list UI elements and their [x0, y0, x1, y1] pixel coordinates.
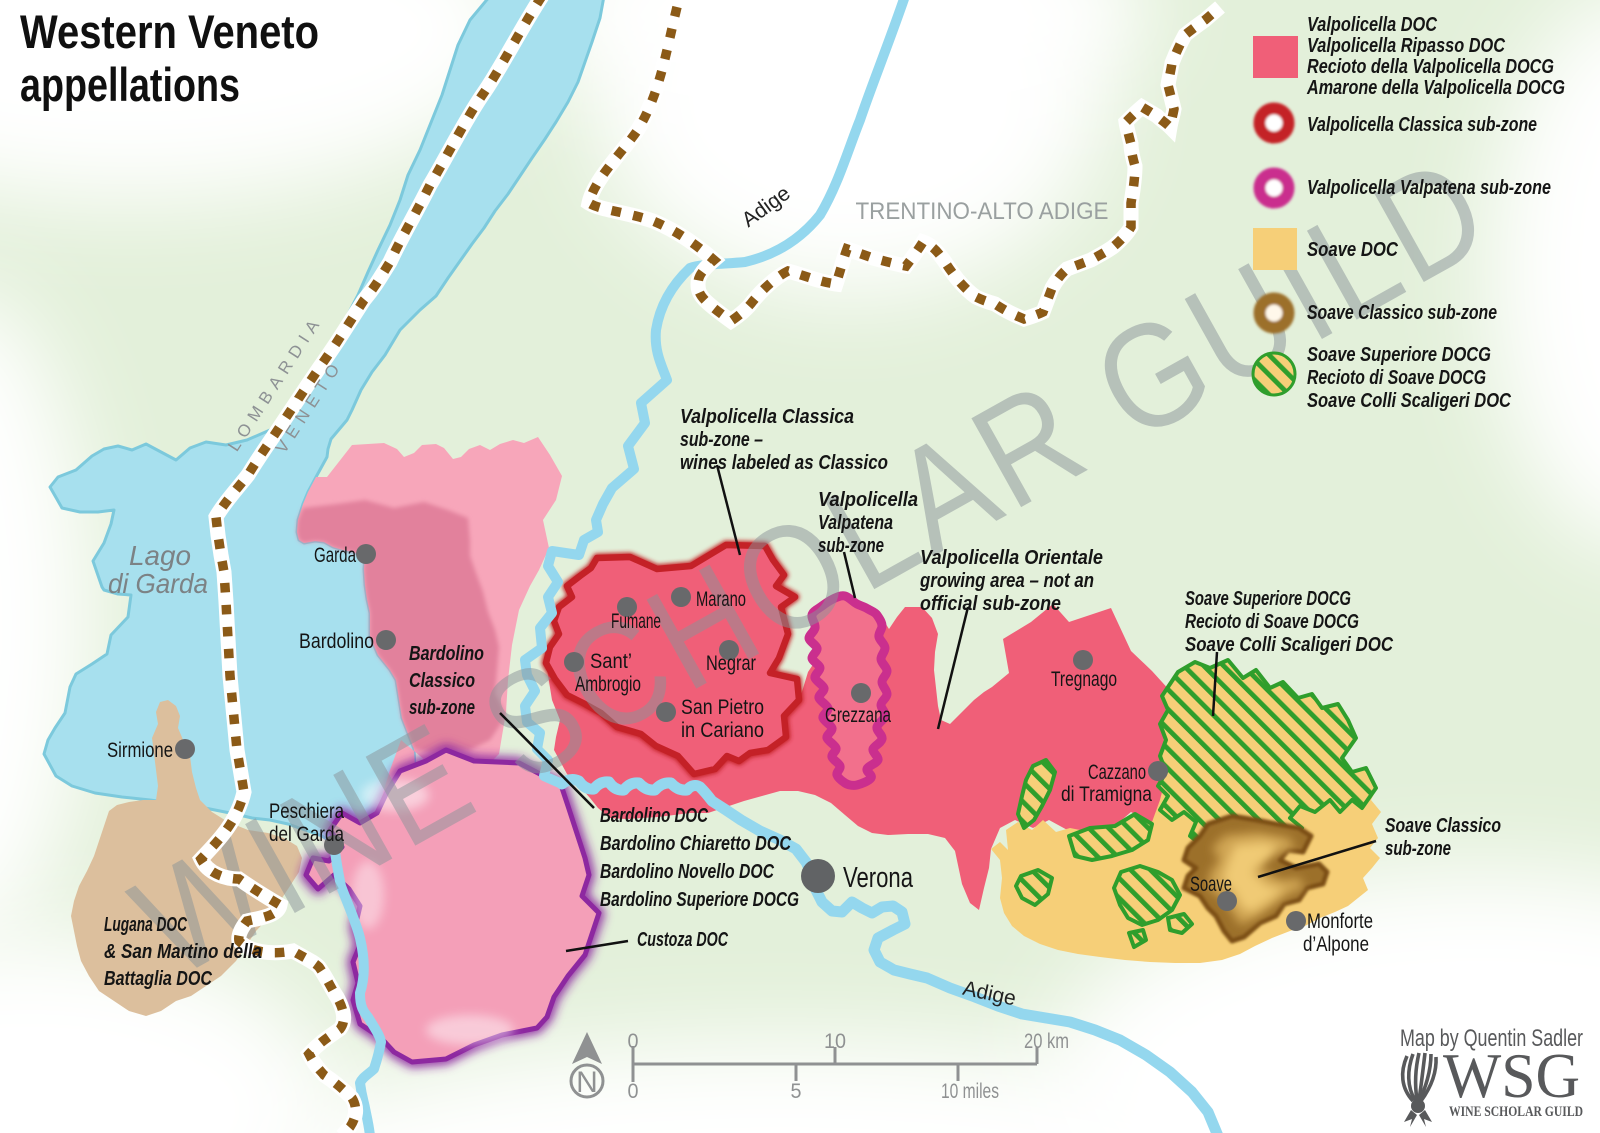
- svg-text:Recioto della Valpolicella DOC: Recioto della Valpolicella DOCG: [1307, 56, 1554, 78]
- svg-text:d’Alpone: d’Alpone: [1303, 933, 1369, 956]
- svg-text:sub-zone: sub-zone: [409, 697, 475, 719]
- svg-text:Soave Classico sub-zone: Soave Classico sub-zone: [1307, 302, 1497, 324]
- svg-text:Bardolino Novello DOC: Bardolino Novello DOC: [600, 861, 774, 883]
- svg-text:Amarone della Valpolicella DOC: Amarone della Valpolicella DOCG: [1306, 77, 1565, 99]
- svg-text:10: 10: [824, 1030, 846, 1053]
- svg-text:appellations: appellations: [20, 58, 240, 111]
- svg-text:Valpolicella Valpatena sub-zon: Valpolicella Valpatena sub-zone: [1307, 177, 1551, 199]
- svg-text:Lugana DOC: Lugana DOC: [104, 914, 187, 936]
- svg-text:Lago: Lago: [129, 540, 191, 571]
- svg-text:Bardolino Chiaretto DOC: Bardolino Chiaretto DOC: [600, 833, 791, 855]
- svg-text:Recioto di Soave DOCG: Recioto di Soave DOCG: [1307, 367, 1486, 389]
- svg-text:Sant’: Sant’: [590, 650, 632, 673]
- svg-text:sub-zone: sub-zone: [1385, 838, 1451, 860]
- svg-text:Tregnago: Tregnago: [1051, 668, 1117, 691]
- svg-text:WSG: WSG: [1443, 1040, 1580, 1111]
- svg-text:Custoza DOC: Custoza DOC: [637, 929, 728, 951]
- svg-text:Monforte: Monforte: [1307, 910, 1373, 933]
- svg-text:10 miles: 10 miles: [941, 1080, 999, 1103]
- svg-text:0: 0: [628, 1080, 639, 1103]
- svg-text:Valpolicella Orientale: Valpolicella Orientale: [920, 547, 1103, 569]
- svg-text:Garda: Garda: [314, 544, 356, 567]
- svg-text:sub-zone: sub-zone: [818, 535, 884, 557]
- svg-text:Soave Superiore DOCG: Soave Superiore DOCG: [1185, 588, 1351, 610]
- svg-text:& San Martino della: & San Martino della: [104, 941, 262, 963]
- svg-text:Soave Superiore DOCG: Soave Superiore DOCG: [1307, 344, 1491, 366]
- svg-text:WINE SCHOLAR GUILD: WINE SCHOLAR GUILD: [1449, 1104, 1583, 1120]
- svg-text:sub-zone –: sub-zone –: [680, 429, 763, 451]
- svg-text:Recioto di Soave DOCG: Recioto di Soave DOCG: [1185, 611, 1359, 633]
- svg-text:Bardolino: Bardolino: [299, 630, 374, 653]
- svg-text:20 km: 20 km: [1024, 1030, 1069, 1053]
- svg-text:Bardolino DOC: Bardolino DOC: [600, 805, 708, 827]
- svg-text:in Cariano: in Cariano: [681, 719, 764, 742]
- svg-text:Bardolino: Bardolino: [409, 643, 484, 665]
- svg-text:Verona: Verona: [843, 862, 914, 894]
- svg-text:Soave DOC: Soave DOC: [1307, 239, 1398, 261]
- svg-text:Western Veneto: Western Veneto: [20, 5, 319, 58]
- svg-text:di Garda: di Garda: [108, 568, 208, 599]
- svg-text:Battaglia DOC: Battaglia DOC: [104, 968, 212, 990]
- svg-text:Sirmione: Sirmione: [107, 739, 173, 762]
- svg-text:San Pietro: San Pietro: [681, 696, 764, 719]
- svg-text:Grezzana: Grezzana: [825, 704, 891, 727]
- svg-text:Valpolicella DOC: Valpolicella DOC: [1307, 14, 1437, 36]
- svg-text:Marano: Marano: [696, 588, 746, 611]
- svg-text:Bardolino Superiore DOCG: Bardolino Superiore DOCG: [600, 889, 799, 911]
- svg-text:Soave Classico: Soave Classico: [1385, 815, 1501, 837]
- svg-text:5: 5: [791, 1080, 802, 1103]
- svg-text:growing area – not an: growing area – not an: [919, 570, 1094, 592]
- svg-text:Classico: Classico: [409, 670, 475, 692]
- svg-text:TRENTINO-ALTO ADIGE: TRENTINO-ALTO ADIGE: [856, 198, 1109, 225]
- svg-text:Soave Colli Scaligeri DOC: Soave Colli Scaligeri DOC: [1307, 390, 1511, 412]
- svg-text:Valpolicella: Valpolicella: [818, 489, 918, 511]
- svg-text:wines labeled as Classico: wines labeled as Classico: [680, 452, 888, 474]
- svg-text:Ambrogio: Ambrogio: [575, 673, 641, 696]
- svg-text:del Garda: del Garda: [269, 823, 344, 846]
- svg-text:Cazzano: Cazzano: [1088, 761, 1146, 784]
- svg-text:Valpolicella Ripasso DOC: Valpolicella Ripasso DOC: [1307, 35, 1505, 57]
- svg-text:0: 0: [628, 1030, 639, 1053]
- svg-text:Negrar: Negrar: [706, 652, 756, 675]
- svg-text:N: N: [576, 1066, 598, 1099]
- svg-text:official sub-zone: official sub-zone: [920, 593, 1061, 615]
- svg-text:di Tramigna: di Tramigna: [1061, 783, 1152, 806]
- svg-text:Valpolicella Classica sub-zone: Valpolicella Classica sub-zone: [1307, 114, 1537, 136]
- svg-text:Valpolicella Classica: Valpolicella Classica: [680, 406, 854, 428]
- svg-text:Fumane: Fumane: [611, 610, 661, 633]
- svg-text:Peschiera: Peschiera: [269, 800, 344, 823]
- svg-text:Valpatena: Valpatena: [818, 512, 893, 534]
- svg-text:Soave Colli Scaligeri DOC: Soave Colli Scaligeri DOC: [1185, 634, 1393, 656]
- svg-text:Soave: Soave: [1190, 873, 1232, 896]
